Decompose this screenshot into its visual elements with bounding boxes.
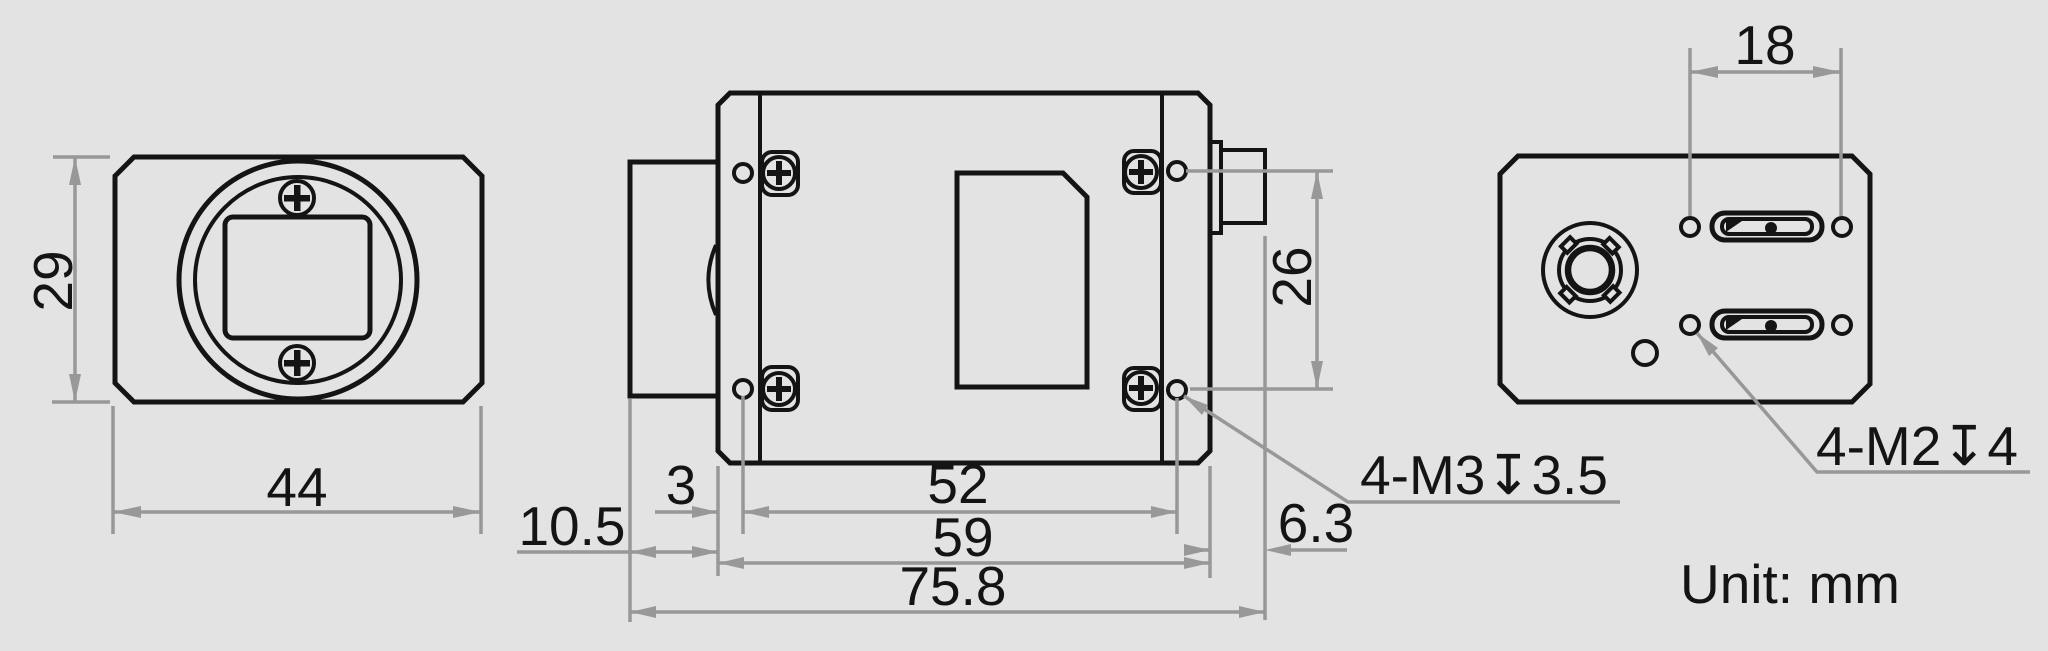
m2-hole-bottom-left [1681,316,1699,334]
mount-hole-front-top [734,164,752,182]
mount-hole-front-bottom [734,380,752,398]
mount-hole-rear-bottom [1168,381,1186,399]
io-connector-top [1712,213,1822,240]
dim-44: 44 [113,406,481,534]
back-body-outline [1500,156,1870,402]
sensor-window [225,217,370,338]
top-screw-rear-bottom [1124,368,1161,410]
dim-26-label: 26 [1261,246,1323,307]
dim-10-5-label: 10.5 [518,495,625,557]
camera-dimension-drawing: 29 44 [0,0,2048,651]
dim-18: 18 [1690,14,1841,216]
m2-hole-bottom-right [1833,316,1851,334]
top-screw-front-top [762,152,798,195]
dim-29: 29 [22,157,110,402]
dim-18-label: 18 [1734,14,1795,76]
top-screw-rear-top [1124,151,1161,193]
dim-75-8-label: 75.8 [899,555,1006,617]
back-view: 18 4-M2↧4 [1500,14,2030,477]
power-connector [1543,223,1637,317]
status-led-hole [1633,341,1657,365]
m2-hole-top-right [1833,218,1851,236]
dim-3: 3 [655,454,718,518]
thread-note-m3: 4-M3↧3.5 [1360,444,1608,506]
front-view: 29 44 [22,157,482,534]
drawing-canvas: 29 44 [0,0,2048,651]
top-view: 3 52 10.5 59 75.8 [517,93,1620,622]
dim-29-label: 29 [22,250,84,311]
top-screw-front-bottom [762,367,798,410]
io-connector-bottom [1712,311,1822,338]
dim-3-label: 3 [666,454,697,516]
unit-note: Unit: mm [1680,553,1900,615]
lens-barrel [630,162,718,396]
dim-44-label: 44 [266,456,327,518]
thread-note-m2: 4-M2↧4 [1816,415,2018,477]
lens-curve [709,245,717,315]
label-sticker [957,173,1087,387]
rear-connector [1210,142,1265,233]
front-screw-top [280,181,314,215]
dim-6-3-label: 6.3 [1278,492,1354,554]
front-screw-bottom [280,346,314,380]
mount-hole-rear-top [1168,162,1186,180]
leader-m3: 4-M3↧3.5 [1184,396,1620,506]
leader-m2: 4-M2↧4 [1697,333,2030,477]
m2-hole-top-left [1681,218,1699,236]
